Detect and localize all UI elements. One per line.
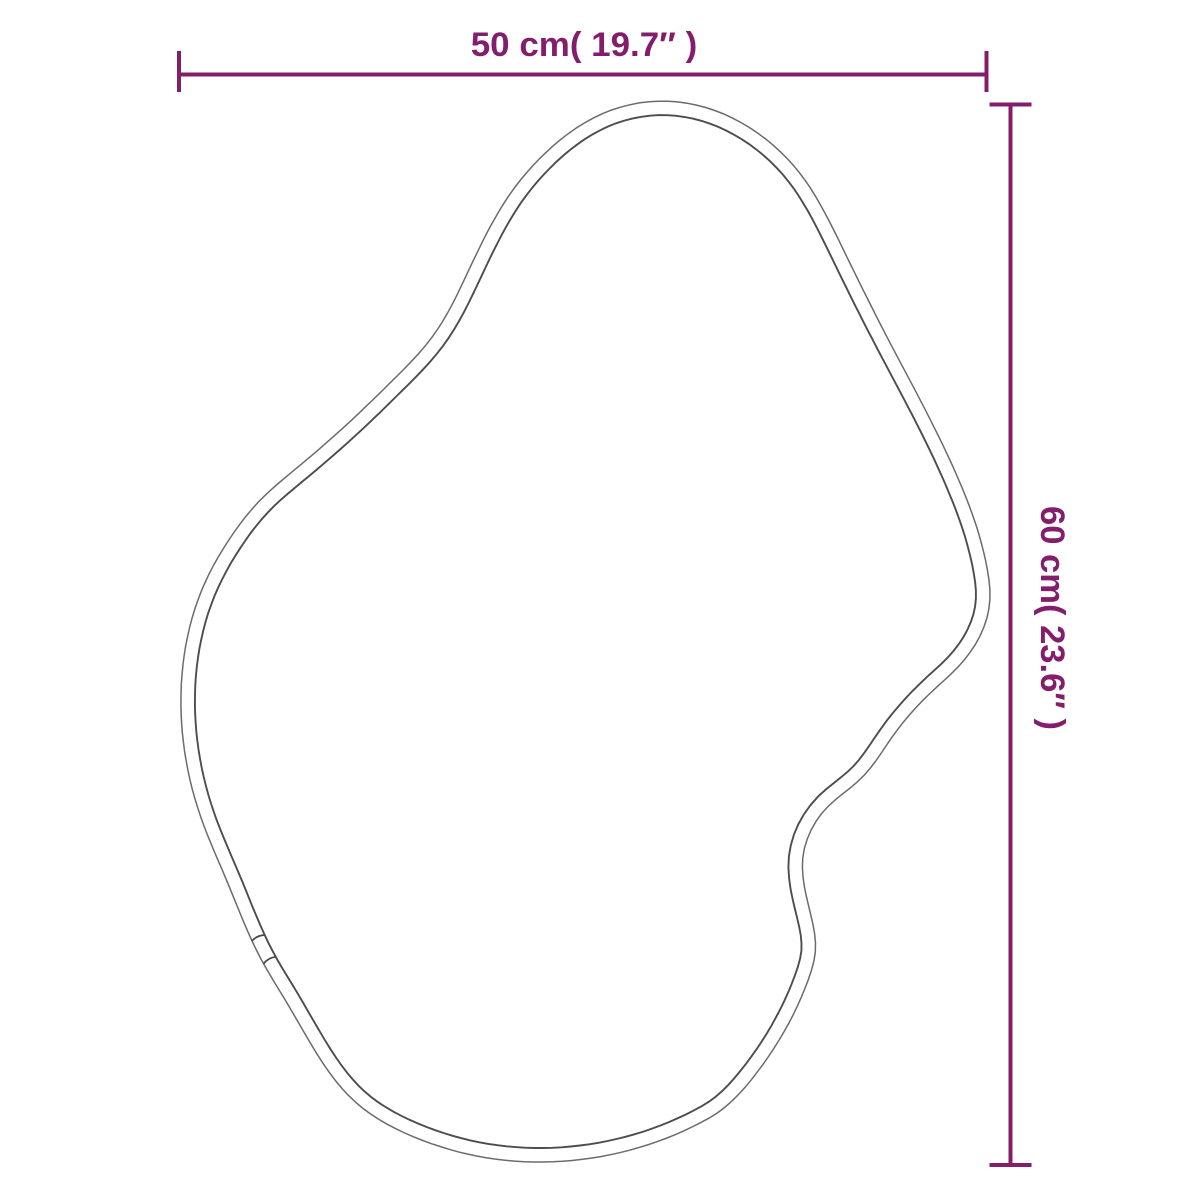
svg-text:50 cm( 19.7″ ): 50 cm( 19.7″ ) xyxy=(471,26,698,64)
svg-text:60 cm( 23.6″ ): 60 cm( 23.6″ ) xyxy=(1033,506,1071,730)
